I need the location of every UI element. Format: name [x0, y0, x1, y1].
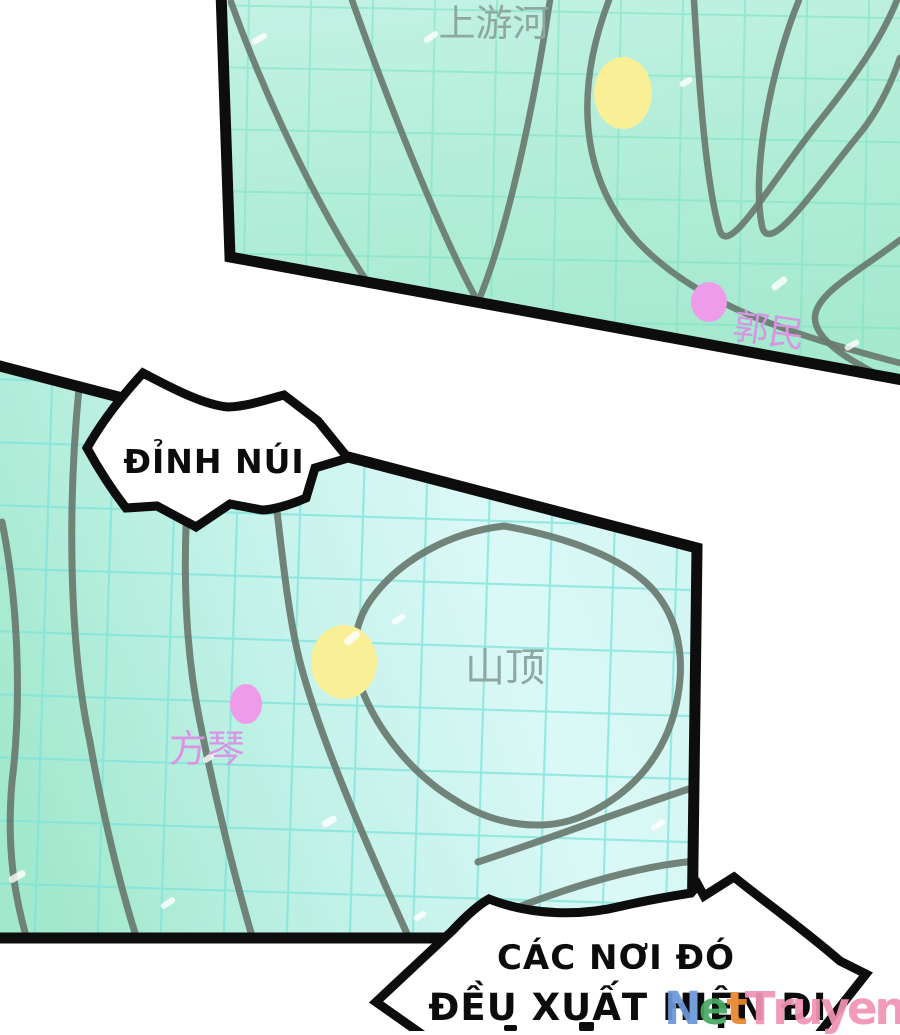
watermark-letter: t [726, 982, 745, 1035]
nettruyen-watermark: NetTruyen [664, 982, 900, 1035]
watermark-letter: e [699, 982, 727, 1035]
map-bottom-peak-label: 山顶 [465, 645, 545, 691]
pink-marker-bottom [230, 684, 262, 724]
peak-callout-text: ĐỈNH NÚI [123, 438, 304, 481]
pink-marker-top [691, 282, 727, 322]
yellow-marker-bottom [311, 625, 377, 699]
yellow-marker-top [594, 57, 652, 129]
comic-art: 上游河 郭民 [0, 0, 900, 1031]
map-bottom-marker-label: 方琴 [169, 727, 245, 771]
comic-page: { "panel_top_map": { "river_label": "上游河… [0, 0, 900, 1031]
watermark-letter: u [792, 982, 821, 1035]
watermark-letter: n [875, 982, 900, 1035]
watermark-letter: y [821, 982, 847, 1035]
watermark-letter: r [772, 982, 791, 1035]
watermark-letter: e [847, 982, 875, 1035]
bottom-speech-line1: CÁC NƠI ĐÓ [497, 937, 735, 978]
watermark-letter: T [745, 982, 773, 1035]
map-panel-top: 上游河 郭民 [210, 0, 900, 395]
watermark-letter: N [664, 982, 699, 1035]
map-top-river-label: 上游河 [439, 2, 550, 45]
